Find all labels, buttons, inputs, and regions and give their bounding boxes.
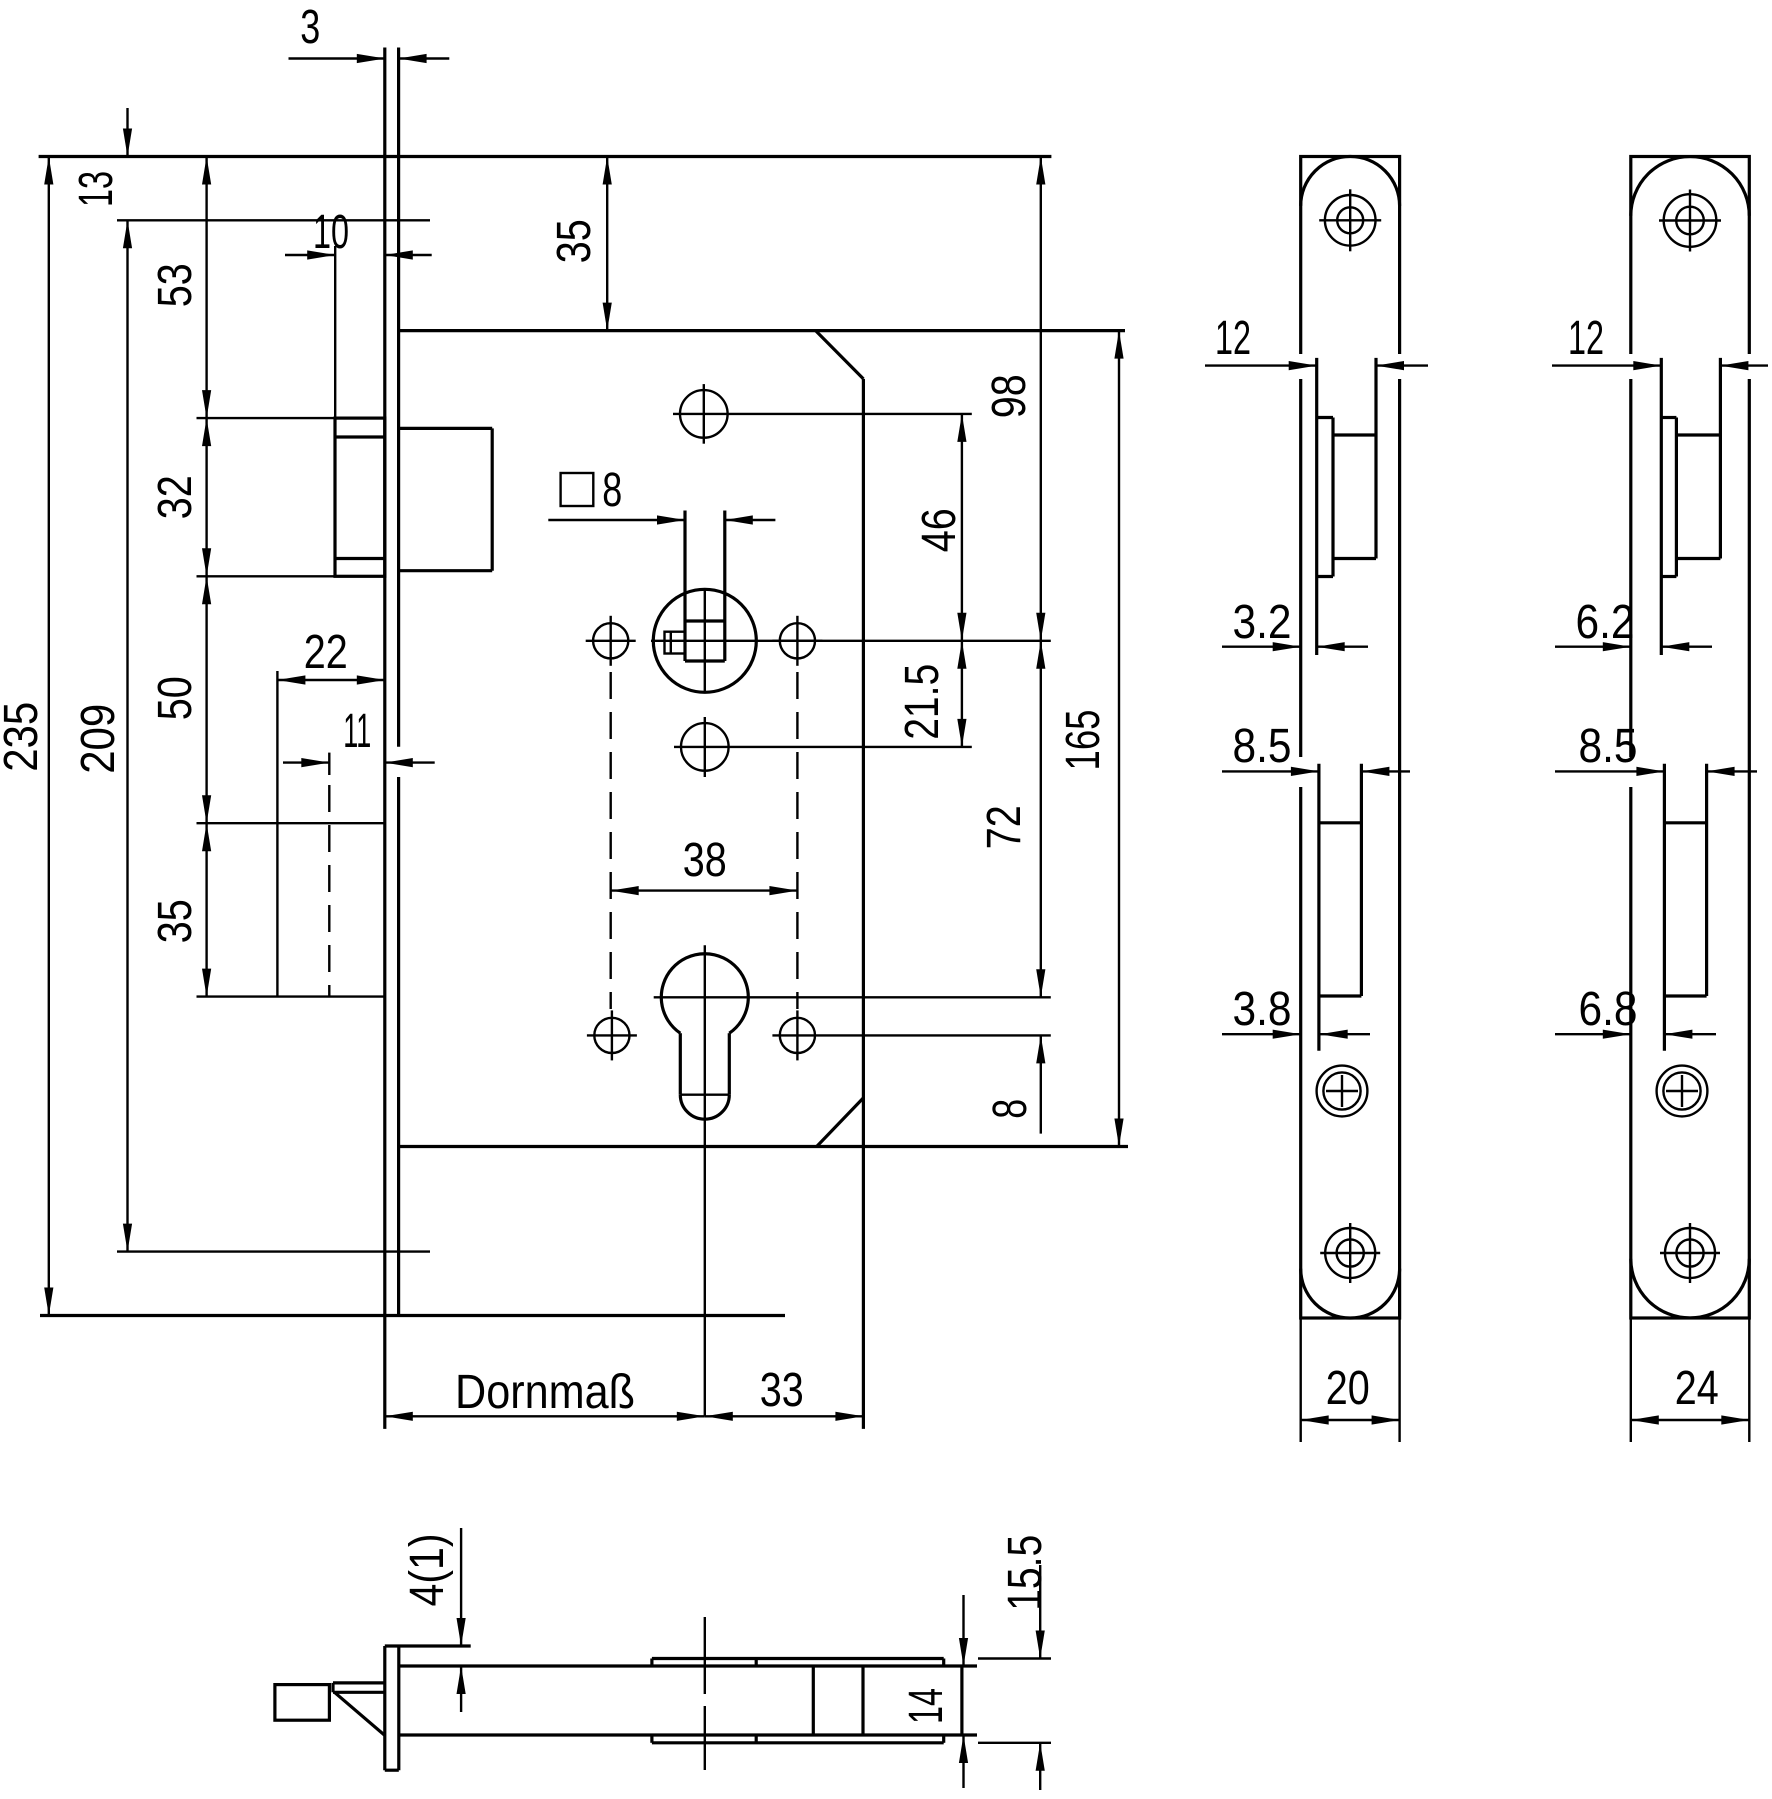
svg-text:6.8: 6.8 [1579, 983, 1638, 1036]
svg-text:24: 24 [1675, 1362, 1719, 1415]
svg-text:33: 33 [760, 1364, 804, 1417]
svg-text:53: 53 [149, 263, 202, 307]
svg-text:8.5: 8.5 [1579, 720, 1638, 773]
svg-text:38: 38 [683, 834, 727, 887]
svg-text:12: 12 [1215, 312, 1251, 365]
svg-text:50: 50 [149, 676, 202, 720]
svg-text:35: 35 [149, 899, 202, 943]
svg-text:3.8: 3.8 [1233, 983, 1292, 1036]
svg-text:Dornmaß: Dornmaß [455, 1366, 635, 1419]
svg-text:209: 209 [72, 704, 125, 774]
svg-text:3: 3 [300, 1, 320, 54]
svg-text:35: 35 [548, 219, 601, 263]
svg-text:235: 235 [0, 702, 48, 772]
svg-text:10: 10 [313, 206, 349, 259]
svg-text:13: 13 [70, 171, 123, 207]
svg-text:32: 32 [149, 475, 202, 519]
svg-text:12: 12 [1568, 312, 1604, 365]
svg-text:4(1): 4(1) [401, 1534, 454, 1607]
svg-text:11: 11 [343, 705, 371, 758]
svg-text:98: 98 [983, 374, 1036, 418]
svg-text:8.5: 8.5 [1233, 720, 1292, 773]
svg-text:46: 46 [913, 508, 966, 552]
svg-text:8: 8 [984, 1099, 1037, 1119]
svg-text:14: 14 [900, 1688, 953, 1724]
svg-text:21.5: 21.5 [896, 664, 949, 740]
svg-text:20: 20 [1326, 1362, 1370, 1415]
svg-text:6.2: 6.2 [1576, 596, 1635, 649]
svg-text:22: 22 [304, 626, 348, 679]
svg-text:72: 72 [978, 805, 1031, 849]
svg-text:3.2: 3.2 [1233, 596, 1292, 649]
svg-text:15.5: 15.5 [999, 1535, 1052, 1611]
svg-text:8: 8 [602, 464, 622, 517]
svg-text:165: 165 [1057, 710, 1110, 771]
